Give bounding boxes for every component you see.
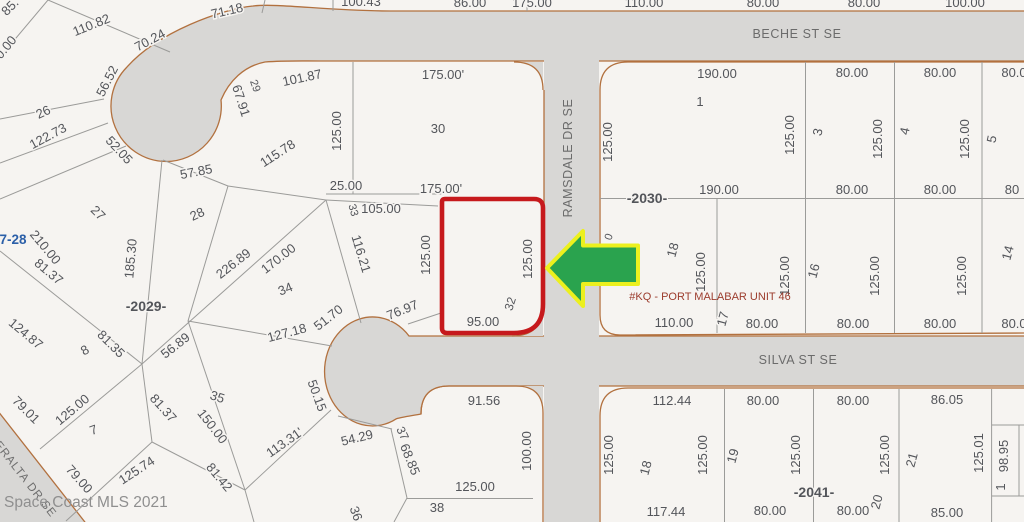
svg-text:30: 30 (431, 121, 445, 136)
svg-text:38: 38 (430, 500, 444, 515)
svg-text:80.00: 80.00 (924, 65, 957, 80)
svg-text:125.00: 125.00 (693, 252, 708, 292)
svg-text:125.00: 125.00 (418, 235, 433, 275)
svg-text:80.00: 80.00 (836, 65, 869, 80)
svg-text:91.56: 91.56 (468, 393, 501, 408)
svg-text:80: 80 (1005, 182, 1019, 197)
svg-text:37-28: 37-28 (0, 232, 27, 247)
svg-text:125.00: 125.00 (782, 115, 797, 155)
svg-text:125.00: 125.00 (870, 119, 885, 159)
svg-text:80.00: 80.00 (848, 0, 881, 10)
svg-text:125.00: 125.00 (957, 119, 972, 159)
svg-text:-2029-: -2029- (126, 298, 167, 314)
svg-text:110.00: 110.00 (655, 315, 694, 330)
svg-text:112.44: 112.44 (653, 393, 692, 408)
svg-text:#KQ - PORT MALABAR UNIT 46: #KQ - PORT MALABAR UNIT 46 (629, 291, 790, 303)
svg-text:100.00: 100.00 (519, 431, 534, 471)
svg-text:175.00': 175.00' (422, 67, 464, 82)
svg-text:80.00: 80.00 (837, 316, 870, 331)
svg-text:98.95: 98.95 (996, 440, 1011, 473)
svg-text:SILVA ST SE: SILVA ST SE (759, 353, 838, 367)
svg-text:125.00: 125.00 (954, 256, 969, 296)
svg-text:80.0: 80.0 (1001, 65, 1024, 80)
svg-text:125.00: 125.00 (788, 435, 803, 475)
svg-text:100.00: 100.00 (945, 0, 985, 10)
svg-text:80.00: 80.00 (746, 316, 779, 331)
svg-text:80.00: 80.00 (836, 182, 869, 197)
svg-text:80.00: 80.00 (747, 393, 780, 408)
svg-text:125.00: 125.00 (600, 122, 615, 162)
svg-text:BECHE ST SE: BECHE ST SE (752, 27, 841, 41)
svg-text:80.00: 80.00 (747, 0, 780, 10)
svg-text:117.44: 117.44 (647, 504, 686, 519)
svg-text:100.43: 100.43 (341, 0, 381, 9)
svg-text:125.00: 125.00 (867, 256, 882, 296)
svg-text:80.00: 80.00 (754, 503, 787, 518)
svg-text:105.00: 105.00 (361, 201, 401, 216)
svg-text:80.00: 80.00 (924, 182, 957, 197)
svg-text:-2041-: -2041- (794, 484, 835, 500)
svg-text:-2030-: -2030- (627, 190, 668, 206)
svg-text:125.00: 125.00 (601, 435, 616, 475)
svg-text:125.01: 125.01 (971, 433, 986, 473)
svg-text:125.00: 125.00 (455, 479, 495, 494)
svg-text:86.05: 86.05 (931, 392, 964, 407)
svg-text:125.00: 125.00 (520, 239, 535, 279)
svg-text:175.00: 175.00 (512, 0, 552, 10)
svg-text:190.00: 190.00 (697, 66, 737, 81)
svg-text:80.00: 80.00 (924, 316, 957, 331)
svg-text:125.00: 125.00 (877, 435, 892, 475)
svg-text:25.00: 25.00 (330, 178, 363, 193)
svg-text:86.00: 86.00 (454, 0, 487, 10)
svg-text:RAMSDALE DR SE: RAMSDALE DR SE (561, 99, 575, 218)
svg-text:125.00: 125.00 (695, 435, 710, 475)
svg-text:1: 1 (696, 94, 703, 109)
svg-text:1: 1 (993, 483, 1008, 490)
svg-text:110.00: 110.00 (625, 0, 664, 10)
svg-text:175.00': 175.00' (420, 181, 462, 196)
svg-text:85.00: 85.00 (931, 505, 964, 520)
svg-text:95.00: 95.00 (467, 314, 500, 329)
svg-text:125.00: 125.00 (329, 111, 344, 151)
svg-text:80.00: 80.00 (837, 503, 870, 518)
svg-text:125.00: 125.00 (777, 256, 792, 296)
svg-text:80.00: 80.00 (837, 393, 870, 408)
svg-text:80.0: 80.0 (1001, 316, 1024, 331)
svg-text:Space Coast MLS 2021: Space Coast MLS 2021 (4, 494, 168, 511)
svg-text:190.00: 190.00 (699, 182, 739, 197)
